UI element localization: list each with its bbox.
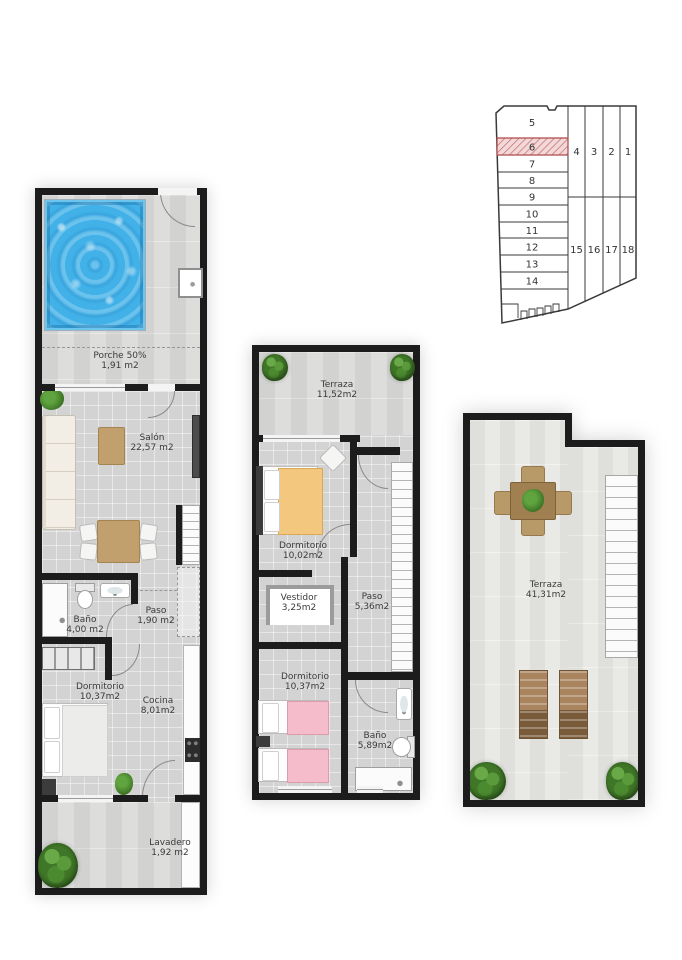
wall <box>175 795 207 802</box>
window <box>263 435 340 442</box>
staircase <box>182 505 200 565</box>
bedroom-door-arc <box>112 644 140 676</box>
toilet <box>392 737 411 757</box>
sink <box>396 688 412 720</box>
solarium-plan: Terraza 41,31m2 <box>463 413 645 807</box>
corner-chair <box>319 444 347 472</box>
porch-boundary-dashed-line <box>42 347 200 348</box>
bathroom-door-arc <box>355 680 388 713</box>
wall <box>350 435 357 557</box>
ground-floor-plan: Porche 50% 1,91 m2 Salón 22,57 m2 <box>35 188 207 895</box>
plot-number: 17 <box>605 245 618 256</box>
wall <box>252 570 312 577</box>
bathroom-door-arc <box>106 604 133 637</box>
wall <box>348 672 413 680</box>
stair-void-dashed <box>177 567 200 637</box>
wall <box>35 637 112 644</box>
wall <box>638 440 645 807</box>
bush-icon <box>606 762 640 800</box>
dining-chair <box>139 542 158 561</box>
headboard <box>256 466 263 535</box>
terrace-chair <box>521 518 545 536</box>
plot-number: 4 <box>573 147 579 158</box>
room-label-bano: Baño 5,89m2 <box>358 731 393 751</box>
room-label-bano: Baño 4,00 m2 <box>66 615 103 635</box>
bush-icon <box>390 354 415 381</box>
room-label-paso: Paso 1,90 m2 <box>137 606 174 626</box>
plot-number: 5 <box>529 118 535 129</box>
plot-number: 7 <box>529 160 535 171</box>
roof-terrace-floor <box>470 420 568 800</box>
plot-number: 18 <box>622 245 635 256</box>
room-label-terraza: Terraza 11,52m2 <box>317 380 357 400</box>
wall <box>252 642 348 649</box>
sun-lounger <box>519 670 548 739</box>
plot-number: 8 <box>529 176 535 187</box>
window <box>357 786 383 793</box>
plot-number: 11 <box>526 226 539 237</box>
staircase <box>391 462 413 672</box>
room-label-dormitorio-doble: Dormitorio 10,37m2 <box>281 672 329 692</box>
bush-icon <box>38 843 78 888</box>
stove <box>185 738 200 762</box>
bed-blanket <box>62 705 108 777</box>
plot-number: 1 <box>625 147 631 158</box>
room-label-paso: Paso 5,36m2 <box>355 592 390 612</box>
pillow <box>262 751 279 781</box>
bed-blanket-orange <box>278 468 323 535</box>
window <box>55 384 125 391</box>
sofa <box>42 415 76 530</box>
tv-unit <box>192 415 200 478</box>
pool-equipment-box <box>178 268 203 298</box>
dining-chair <box>139 523 158 542</box>
wall <box>105 644 112 680</box>
room-label-cocina: Cocina 8,01m2 <box>141 696 176 716</box>
room-label-dormitorio: Dormitorio 10,37m2 <box>76 682 124 702</box>
entrance-opening <box>158 188 197 195</box>
wall <box>463 800 645 807</box>
room-label-porche: Porche 50% 1,91 m2 <box>93 351 146 371</box>
dining-chair <box>79 523 98 542</box>
plot-number: 12 <box>526 243 539 254</box>
plot-number-highlighted: 6 <box>529 143 535 154</box>
bush-icon <box>262 354 288 381</box>
first-floor-plan: Terraza 11,52m2 Dormitorio 10,02m2 Vesti… <box>252 345 420 800</box>
plot-number: 13 <box>526 260 539 271</box>
pillow <box>44 741 60 773</box>
kitchen-counter <box>183 645 200 795</box>
wall <box>463 413 470 807</box>
pillow <box>264 470 280 500</box>
site-plan: 5 6 7 8 9 10 11 12 13 14 4 3 2 1 15 16 1… <box>488 98 648 333</box>
pillow <box>44 707 60 739</box>
bush-icon <box>468 762 506 800</box>
plot-number: 14 <box>526 277 539 288</box>
floor-plan-page: 5 6 7 8 9 10 11 12 13 14 4 3 2 1 15 16 1… <box>0 0 682 960</box>
bedside-table <box>42 779 56 795</box>
room-label-vestidor: Vestidor 3,25m2 <box>281 593 318 613</box>
wall <box>463 413 572 420</box>
patio-door-arc <box>142 760 175 797</box>
plant-icon <box>40 389 64 410</box>
bed-blanket-pink <box>287 701 329 735</box>
staircase <box>605 475 638 658</box>
landing-door-arc <box>358 455 388 489</box>
pillow <box>264 502 280 532</box>
wall <box>341 649 348 793</box>
shower <box>42 583 68 637</box>
plant-icon <box>115 773 133 795</box>
wall <box>35 573 138 580</box>
porch-door-arc <box>148 391 175 418</box>
dining-table <box>97 520 140 563</box>
room-label-dormitorio-principal: Dormitorio 10,02m2 <box>279 541 327 561</box>
sink <box>100 583 130 598</box>
room-label-salon: Salón 22,57 m2 <box>130 433 173 453</box>
plot-number: 3 <box>591 147 597 158</box>
wall <box>176 505 182 565</box>
room-label-lavadero: Lavadero 1,92 m2 <box>149 838 191 858</box>
wall <box>131 580 138 604</box>
pillow <box>262 703 279 733</box>
door-opening <box>148 384 175 391</box>
plot-number: 2 <box>608 147 614 158</box>
wall <box>350 447 400 455</box>
window <box>278 786 332 793</box>
wardrobe <box>42 647 95 670</box>
coffee-table <box>98 427 125 465</box>
sun-lounger <box>559 670 588 739</box>
bedside-table <box>256 736 270 747</box>
plot-number: 10 <box>526 210 539 221</box>
wall <box>565 440 645 447</box>
room-label-terraza-solarium: Terraza 41,31m2 <box>526 580 566 600</box>
wall <box>341 557 348 649</box>
toilet <box>77 590 93 609</box>
window <box>58 795 113 802</box>
swimming-pool <box>45 200 145 330</box>
plot-number: 16 <box>588 245 601 256</box>
dashed-line <box>140 590 177 591</box>
plot-number: 9 <box>529 193 535 204</box>
dining-chair <box>79 542 98 561</box>
bed-blanket-pink <box>287 749 329 783</box>
plot-number: 15 <box>570 245 583 256</box>
